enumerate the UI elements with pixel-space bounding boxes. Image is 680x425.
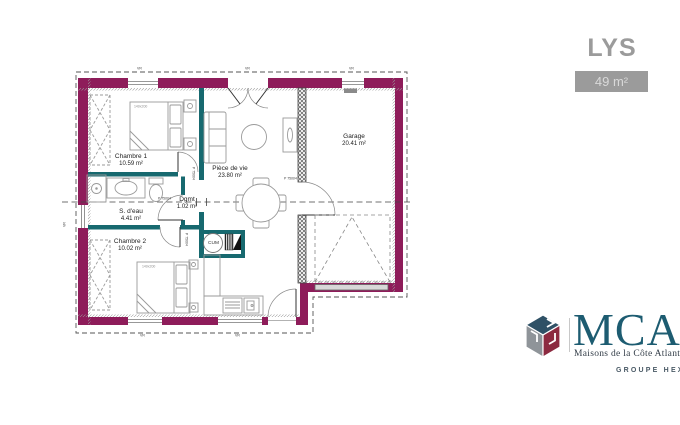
roof-overhang-outline <box>76 72 407 333</box>
room-label-garage: Garage 20.41 m² <box>319 133 389 149</box>
room-name: Chambre 2 <box>95 238 165 246</box>
sideboard <box>283 118 297 152</box>
coffee-table <box>242 125 267 150</box>
logo-divider <box>569 318 570 352</box>
window-marker: VR <box>245 67 250 70</box>
room-area: 10.02 m² <box>95 246 165 254</box>
room-label-chambre-1: Chambre 1 10.59 m² <box>96 153 166 169</box>
door-living-exterior <box>268 289 296 317</box>
room-area: 1.02 m² <box>167 204 207 212</box>
room-area: 10.59 m² <box>96 161 166 169</box>
mca-logo-cube-icon <box>523 313 563 364</box>
door-ref-label: P 75004 <box>185 233 188 246</box>
dining-table <box>242 184 280 222</box>
area-badge: 49 m² <box>575 71 648 92</box>
mca-group-text: GROUPE HEXAOM <box>616 367 680 374</box>
mca-tagline: Maisons de la Côte Atlantique <box>574 349 680 359</box>
model-name: LYS <box>575 34 649 63</box>
sofa <box>204 112 226 163</box>
floor-plan-drawing <box>60 55 415 345</box>
bed-size-label: 140x200 <box>134 105 147 108</box>
window-marker: VR <box>137 67 142 70</box>
room-label-piece-de-vie: Pièce de vie 23.80 m² <box>195 165 265 181</box>
garage-door <box>315 215 390 290</box>
room-label-s-deau: S. d'eau 4.41 m² <box>96 208 166 224</box>
door-garage <box>302 182 335 215</box>
room-area: 20.41 m² <box>319 141 389 149</box>
window-marker: VR <box>235 334 240 337</box>
room-area: 23.80 m² <box>195 173 265 181</box>
bed-size-label: 140x200 <box>142 265 155 268</box>
room-label-chambre-2: Chambre 2 10.02 m² <box>95 238 165 254</box>
technical-symbol <box>225 234 241 250</box>
room-name: S. d'eau <box>96 208 166 216</box>
water-heater-label: CUM <box>206 240 221 245</box>
room-label-dgmt: Dgmt 1.02 m² <box>167 196 207 212</box>
room-area: 4.41 m² <box>96 216 166 224</box>
door-ref-label: P 75004 <box>158 197 171 200</box>
page: { "header": { "model_name": "LYS", "area… <box>0 0 680 425</box>
floor-plan: Chambre 1 10.59 m² S. d'eau 4.41 m² Cham… <box>60 55 415 345</box>
window-marker: VR <box>63 222 66 227</box>
room-name: Pièce de vie <box>195 165 265 173</box>
room-name: Garage <box>319 133 389 141</box>
door-ref-label: P 75004 <box>284 177 297 180</box>
room-name: Chambre 1 <box>96 153 166 161</box>
room-name: Dgmt <box>167 196 207 204</box>
window-marker: VR <box>349 67 354 70</box>
kitchen-counter <box>204 255 263 315</box>
garage-partition-wall <box>298 88 306 283</box>
door-ref-label: P 75004 <box>192 167 195 180</box>
window-marker: VR <box>140 334 145 337</box>
entry-door <box>228 88 268 108</box>
sink <box>107 178 145 198</box>
